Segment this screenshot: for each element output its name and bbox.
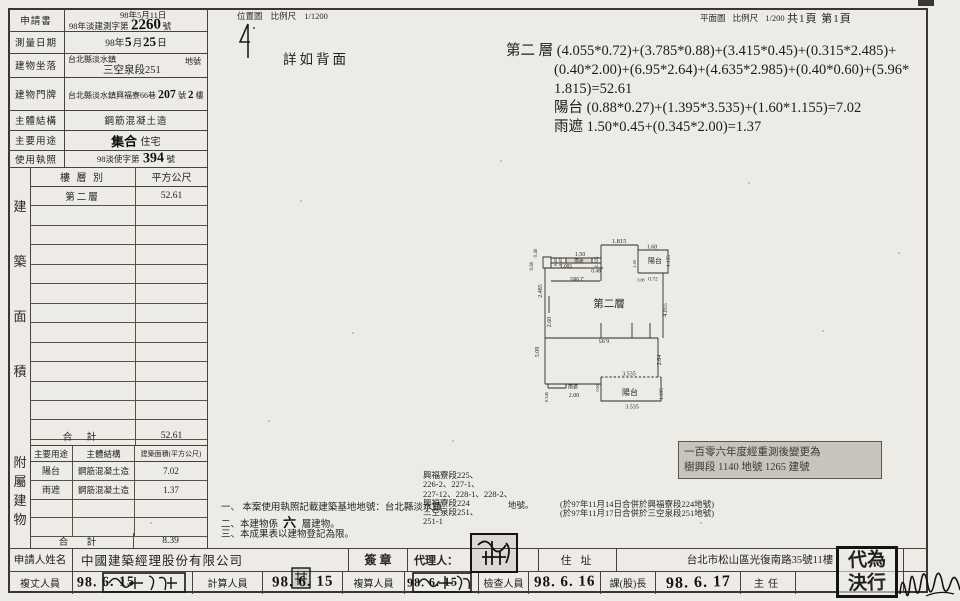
survey-year: 98年	[105, 35, 124, 49]
formula-line: 1.815)=52.61	[506, 80, 936, 99]
usage-row: 主要用途 集合 住宅	[8, 130, 207, 151]
area-table-row	[30, 226, 207, 245]
formula-line: 雨遮 1.50*0.45+(0.345*2.00)=1.37	[506, 118, 936, 137]
area-computation-formulas: 第二 層 (4.055*0.72)+(3.785*0.88)+(3.415*0.…	[506, 42, 936, 137]
survey-date-row: 測量日期 98年 5 月 25 日	[8, 31, 207, 54]
scanned-building-survey-form: 位置圖 比例尺 1/1200 平面圖 比例尺 1/200 共1頁 第1頁 詳如背…	[0, 0, 960, 601]
dimension-label: 2.64	[657, 355, 663, 366]
annex-table-row: 陽台鋼筋混凝土造7.02	[30, 462, 207, 481]
annex-col1-header: 主要用途	[30, 446, 73, 461]
resurvey-name-seal	[73, 571, 191, 594]
paper-speck	[268, 420, 270, 422]
dimension-label: 3.535	[625, 405, 639, 411]
area-total-label: 合 計	[30, 427, 136, 445]
annex-table-row: 雨遮鋼筋混凝土造1.37	[30, 481, 207, 500]
form-plan-divider	[207, 8, 208, 548]
survey-month-unit: 月	[133, 35, 143, 49]
paper-speck	[150, 522, 152, 524]
license-suffix: 號	[167, 153, 176, 165]
application-label: 申請書	[8, 8, 65, 31]
building-location-row: 建物坐落 台北縣淡水鎮 三空泉段251 地號	[8, 53, 207, 78]
agent-seal-stamp	[470, 533, 518, 573]
license-prefix: 98淡使字第	[97, 153, 140, 165]
dimension-label: 0.72	[648, 277, 658, 283]
area-table-body: 第二層52.61	[30, 187, 207, 427]
application-value: 98年5月11日 98年淡建測字第 2260 號	[65, 8, 207, 31]
dimension-label: 1.155	[666, 255, 672, 267]
area-col2-header: 平方公尺	[136, 167, 207, 186]
application-row: 申請書 98年5月11日 98年淡建測字第 2260 號	[8, 8, 207, 32]
section-chief-date-stamp: 98. 6. 17	[665, 572, 731, 592]
dimension-label: 3.535	[622, 372, 636, 378]
dimension-label: 0.88	[638, 278, 645, 283]
paper-speck	[352, 332, 354, 334]
address-floor: 2	[188, 89, 194, 101]
survey-day: 25	[143, 34, 157, 50]
lot-number-list: 興福寮段225、226-2、227-1、227-12、228-1、228-2、興…	[423, 471, 583, 527]
paper-speck	[748, 182, 750, 184]
area-table-row	[30, 206, 207, 225]
building-location-value: 台北縣淡水鎮 三空泉段251 地號	[65, 53, 207, 77]
paper-speck	[500, 160, 502, 162]
resurvey-staff-stamp-cell: 98. 6. 15	[72, 571, 192, 594]
area-table-row	[30, 382, 207, 401]
address-floor-unit: 樓	[196, 91, 204, 100]
usage-value: 集合 住宅	[65, 130, 207, 150]
formula-line: (0.40*2.00)+(6.95*2.64)+(4.635*2.985)+(0…	[506, 61, 936, 80]
recheck-name-seal	[405, 571, 477, 594]
dimension-label: 4.055	[663, 303, 669, 317]
dimension-label: 1.815	[612, 238, 627, 245]
plan-scale-label: 比例尺	[733, 13, 759, 23]
application-doc-suffix: 號	[163, 21, 172, 31]
plan-scale-value: 1/200	[765, 13, 784, 23]
remeasurement-stamp: 一百零六年度經重測後變更為 樹興段 1140 地號 1265 建號	[678, 441, 882, 479]
dimension-label: 雨遮	[574, 258, 584, 265]
decision-stamp: 代為 決行	[836, 546, 898, 598]
usage-hw: 集合	[111, 130, 138, 150]
cut-off-stamp-mark	[918, 0, 934, 6]
location-scale-value: 1/1200	[304, 11, 328, 21]
signature-label: 簽 章	[348, 548, 407, 571]
dimension-label: 0.60	[530, 261, 535, 270]
survey-day-unit: 日	[157, 35, 167, 49]
area-table-row	[30, 401, 207, 420]
remeasurement-line2: 樹興段 1140 地號 1265 建號	[684, 460, 876, 475]
building-location-label: 建物坐落	[8, 53, 65, 77]
dimension-label: 0.48	[591, 269, 601, 275]
dimension-label: 2.985	[570, 275, 584, 281]
usage-label: 主要用途	[8, 130, 65, 150]
resurvey-staff-label: 複丈人員	[8, 571, 72, 594]
floor-plan-drawing: 1.8150.400.600.450.451.50雨遮1.3251.0050.4…	[515, 228, 705, 428]
annex-total-label: 合 計	[30, 533, 134, 548]
section-chief-date-cell: 98. 6. 17	[655, 571, 740, 594]
dimension-label: 5.09	[535, 347, 541, 358]
calculation-date-cell: 98. 6. 15	[262, 571, 342, 594]
annex-table-side-label: 附屬建物	[11, 456, 29, 532]
dimension-label: 第二層	[593, 297, 625, 310]
location-suffix: 地號	[185, 56, 201, 67]
annex-table-header: 主要用途 主體結構 建築面積(平方公尺)	[30, 446, 207, 462]
formula-line: 陽台 (0.88*0.27)+(1.395*3.535)+(1.60*1.155…	[506, 99, 936, 118]
dimension-label: 陽台	[648, 256, 662, 265]
area-table-row	[30, 343, 207, 362]
calculation-name-seal	[291, 567, 311, 589]
director-label: 主任	[740, 571, 795, 594]
dimension-label: 雨遮	[568, 384, 578, 391]
area-table-row	[30, 245, 207, 264]
license-label: 使用執照	[8, 150, 65, 167]
note-1: 一、 本案使用執照記載建築基地地號：台北縣淡水鎮	[221, 499, 442, 513]
decision-stamp-line2: 決行	[848, 571, 887, 595]
residence-label: 住 址	[538, 548, 616, 571]
plan-map-header: 平面圖 比例尺 1/200	[700, 12, 785, 24]
plan-map-label: 平面圖	[700, 13, 726, 23]
paper-speck	[898, 252, 900, 254]
applicant-name-label: 申請人姓名	[8, 548, 72, 571]
area-table-row	[30, 265, 207, 284]
structure-row: 主體結構 鋼筋混凝土造	[8, 110, 207, 131]
page-count: 共1頁 第1頁	[787, 10, 852, 26]
paper-speck	[700, 522, 702, 524]
building-address-value: 台北縣淡水鎮興福寮66巷 207 號 2 樓	[65, 77, 207, 110]
paper-speck	[822, 330, 824, 332]
survey-month: 5	[125, 34, 132, 50]
license-row: 使用執照 98淡使字第 394 號	[8, 150, 207, 168]
address-number-unit: 號	[178, 91, 186, 100]
north-arrow-icon	[235, 20, 259, 62]
building-address-row: 建物門牌 台北縣淡水鎮興福寮66巷 207 號 2 樓	[8, 77, 207, 111]
annex-table-total-row: 合 計 8.39	[30, 533, 207, 548]
area-table-row	[30, 323, 207, 342]
annex-table-body: 陽台鋼筋混凝土造7.02雨遮鋼筋混凝土造1.37	[30, 462, 207, 533]
recheck-staff-label: 複算人員	[342, 571, 404, 594]
application-doc-prefix: 98年淡建測字第	[69, 21, 129, 31]
dimension-label: 陽台	[622, 387, 638, 397]
scale-label: 比例尺	[271, 11, 297, 21]
paper-speck	[300, 200, 302, 202]
area-table-side-label: 建築面積	[11, 200, 29, 420]
license-number: 394	[142, 150, 164, 167]
dimension-label: 1.005	[560, 264, 572, 270]
area-table-header: 樓 層 別 平方公尺	[30, 167, 207, 187]
dimension-label: 0.60	[595, 385, 600, 392]
area-table-total-row: 合 計 52.61	[30, 427, 207, 446]
dimension-label: 1.49	[632, 259, 637, 267]
paper-speck	[452, 440, 454, 442]
survey-date-value: 98年 5 月 25 日	[65, 31, 207, 53]
license-value: 98淡使字第 394 號	[65, 150, 207, 167]
lot-number-line: 三空泉段251、	[423, 508, 583, 517]
dimension-label: 2.00	[569, 393, 580, 399]
dimension-label: 0.345	[544, 391, 549, 402]
annex-total-value: 8.39	[134, 533, 207, 548]
handwritten-signature	[896, 556, 960, 601]
inspection-date-cell: 98. 6. 16	[528, 571, 600, 594]
area-col1-header: 樓 層 別	[30, 167, 136, 186]
annex-col2-header: 主體結構	[73, 446, 135, 461]
dimension-label: 1.50	[575, 252, 586, 258]
annex-col3-header: 建築面積(平方公尺)	[135, 446, 207, 461]
annex-table-row	[30, 500, 207, 519]
area-table-row	[30, 304, 207, 323]
decision-stamp-line1: 代為	[848, 548, 887, 572]
inspection-date-stamp: 98. 6. 16	[534, 573, 596, 591]
structure-label: 主體結構	[8, 110, 65, 130]
dimension-label: 0.40	[534, 248, 539, 257]
formula-line: 第二 層 (4.055*0.72)+(3.785*0.88)+(3.415*0.…	[506, 42, 936, 61]
dimension-label: 2.485	[538, 284, 544, 298]
building-address-label: 建物門牌	[8, 77, 65, 110]
area-total-value: 52.61	[136, 427, 207, 445]
lot-unit-suffix: 地號。	[508, 499, 534, 511]
dimension-label: 1.60	[647, 245, 658, 251]
structure-value: 鋼筋混凝土造	[65, 110, 207, 130]
dimension-label: 1.325	[595, 256, 600, 267]
see-back-note: 詳如背面	[283, 48, 349, 68]
area-table-row: 第二層52.61	[30, 187, 207, 206]
address-prefix: 台北縣淡水鎮興福寮66巷	[68, 91, 156, 100]
location-line2: 三空泉段251	[103, 62, 161, 77]
note-3: 三、本成果表以建物登記為限。	[221, 526, 354, 540]
area-table-row	[30, 284, 207, 303]
merge-remark-2: (於97年11月17日合併於三空泉段251地號)	[560, 507, 714, 519]
address-number: 207	[158, 87, 177, 103]
section-chief-label: 課(股)長	[600, 571, 655, 594]
remeasurement-line1: 一百零六年度經重測後變更為	[684, 445, 876, 460]
survey-date-label: 測量日期	[8, 31, 65, 53]
dimension-label: 2.60	[547, 317, 553, 328]
lot-number-line: 251-1	[423, 517, 583, 526]
area-table-row	[30, 362, 207, 381]
usage-printed: 住宅	[141, 133, 161, 148]
calculation-staff-label: 計算人員	[192, 571, 262, 594]
recheck-staff-stamp-cell: 98. 6. 15	[404, 571, 478, 594]
dimension-label: 1.395	[659, 388, 665, 400]
dimension-label: 6.95	[599, 337, 610, 343]
